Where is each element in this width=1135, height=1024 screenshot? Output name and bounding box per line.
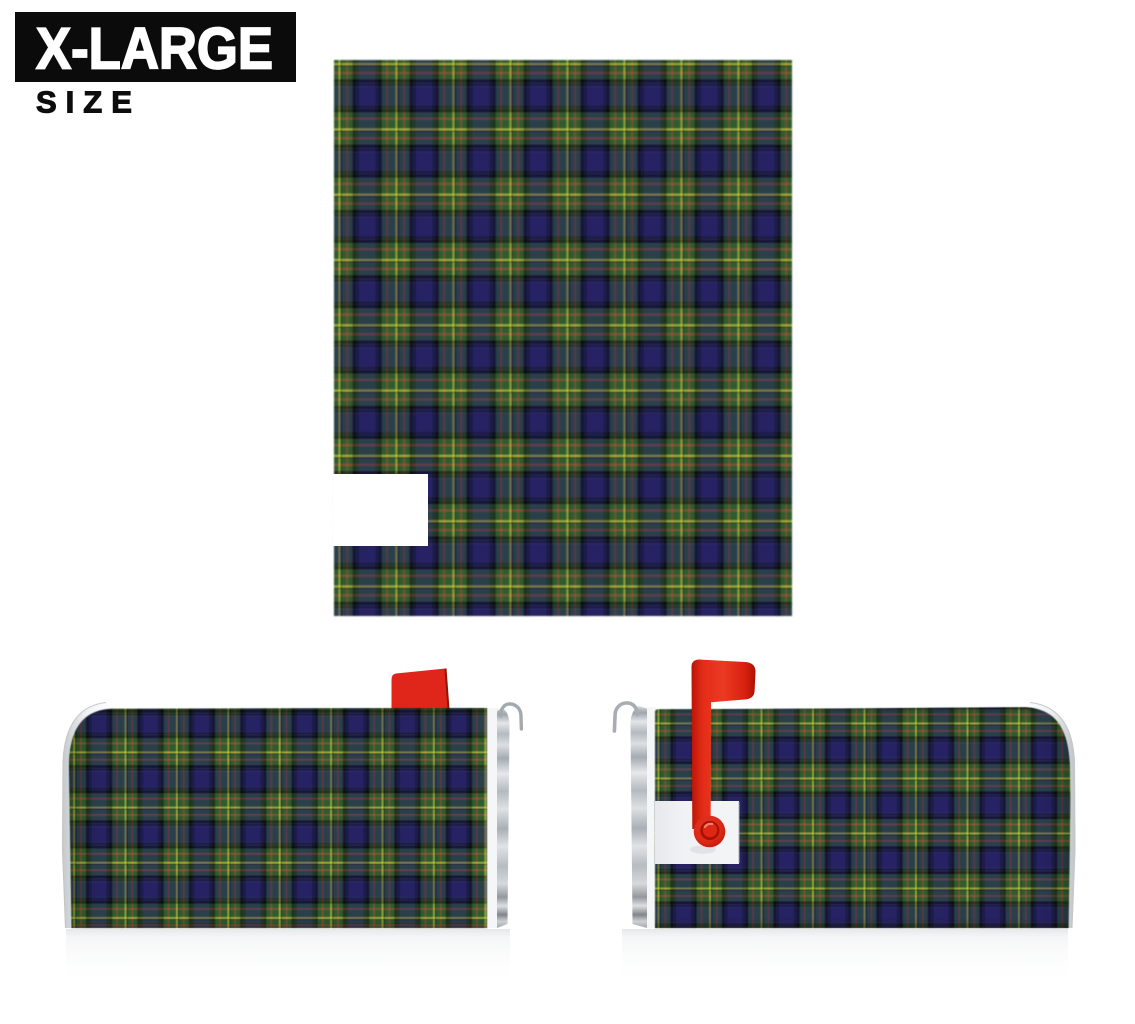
svg-text:SIZE: SIZE: [36, 85, 141, 120]
svg-text:X-LARGE: X-LARGE: [36, 17, 273, 82]
